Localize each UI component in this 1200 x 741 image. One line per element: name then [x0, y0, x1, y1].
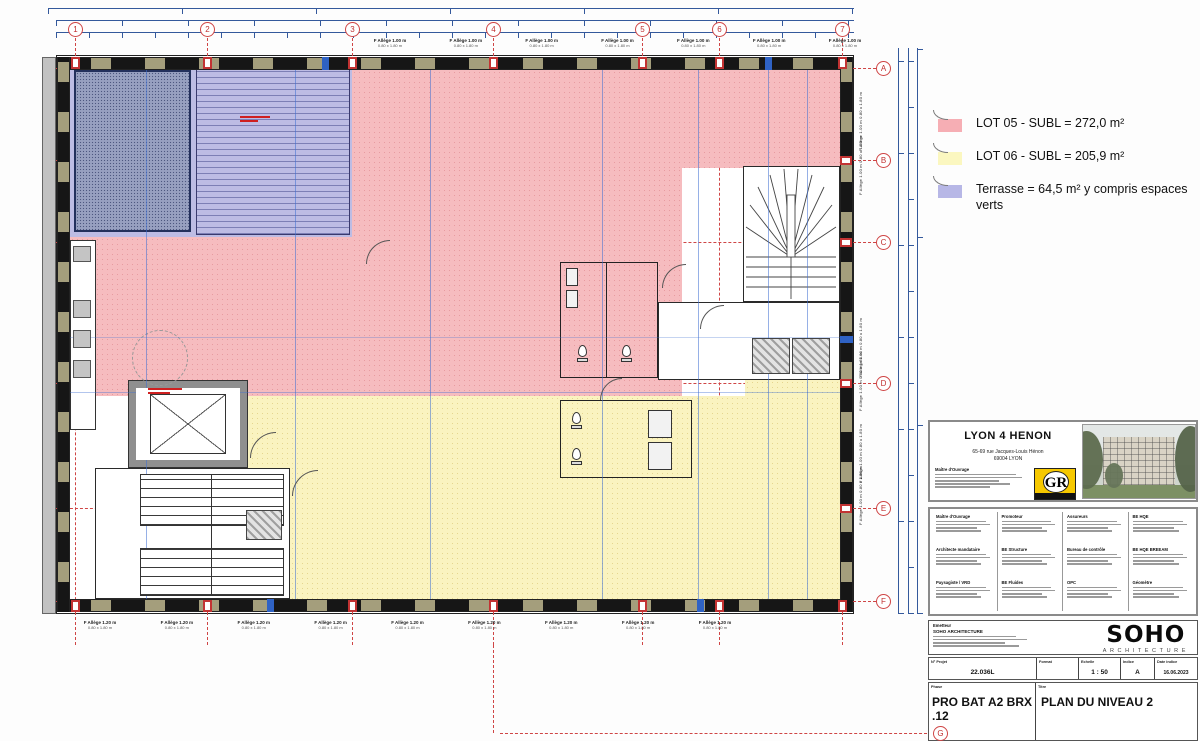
contact-text-line: [1133, 587, 1184, 589]
tree: [1105, 463, 1123, 488]
contact-text-line: [1067, 527, 1108, 529]
tree: [1175, 426, 1196, 492]
contact-text-line: [936, 593, 977, 595]
contact-block: Architecte mandataire: [932, 545, 998, 578]
contact-text-line: [936, 557, 990, 559]
contact-text-line: [1133, 554, 1184, 556]
contact-text-line: [1002, 587, 1052, 589]
contact-text-line: [1133, 530, 1179, 532]
legend-swatch: [938, 119, 962, 132]
contacts-grid: Maître d'OuvragePromoteurAssureursBE HQE…: [928, 507, 1198, 616]
dimension-line: [56, 20, 854, 26]
legend-label: LOT 05 - SUBL = 272,0 m²: [976, 116, 1124, 132]
blue-axis-line: [295, 70, 296, 599]
project-address-2: 69004 LYON: [934, 456, 1082, 462]
grid-bubble-side: A: [876, 61, 891, 76]
field-value: 1 : 50: [1079, 669, 1120, 676]
gr-logo-band: [1035, 493, 1075, 499]
tree: [1082, 431, 1103, 489]
field-label: Echelle: [1081, 660, 1094, 664]
soho-logo: SOHO ARCHITECTURE: [1103, 624, 1189, 654]
blue-axis-line: [768, 70, 769, 599]
contact-text-line: [936, 530, 981, 532]
legend-label: Terrasse = 64,5 m² y compris espaces ver…: [976, 182, 1196, 213]
wall-top: [57, 57, 853, 70]
grid-bubble-bottom: G: [933, 726, 948, 741]
field-value: 16.06.2023: [1155, 670, 1197, 676]
contact-text-line: [936, 596, 981, 598]
field-label: Indice: [1123, 660, 1134, 664]
window-label-top: F Allège 1.00 m0.80 x 1.80 m: [677, 38, 710, 48]
mullion-mark: [765, 57, 772, 70]
contact-text-line: [1133, 560, 1174, 562]
zone-lot05-left: [70, 237, 352, 396]
terrasse-decking: [196, 68, 350, 235]
contact-text-line: [1067, 557, 1121, 559]
window-label-top: F Allège 1.00 m0.80 x 1.80 m: [374, 38, 407, 48]
legend-item: Terrasse = 64,5 m² y compris espaces ver…: [938, 182, 1196, 213]
contact-block-title: BE Fluides: [1002, 580, 1059, 585]
contact-text-line: [1133, 590, 1188, 592]
toilet-tank: [571, 461, 582, 465]
contact-text-line: [936, 563, 981, 565]
elevator-annotation: [148, 388, 182, 390]
contact-block-title: Architecte mandataire: [936, 547, 993, 552]
terrasse-espaces-verts: [74, 70, 191, 232]
field-label: N° Projet: [931, 660, 947, 664]
contact-block-title: Maître d'Ouvrage: [936, 514, 993, 519]
contact-block: Géomètre: [1129, 578, 1195, 611]
cupboard: [792, 338, 830, 374]
contact-text-line: [1002, 521, 1052, 523]
window-frame-mark: [840, 156, 852, 165]
axis-line-G: [500, 733, 932, 734]
grid-bubble-top: 1: [68, 22, 83, 37]
elevator-annotation: [148, 392, 170, 394]
blue-axis-line: [70, 337, 840, 338]
grid-bubble-top: 4: [486, 22, 501, 37]
window-label-top: F Allège 1.00 m0.80 x 1.80 m: [829, 38, 862, 48]
contact-text-line: [1067, 524, 1121, 526]
toilet: [578, 345, 587, 357]
field-value: A: [1121, 669, 1154, 676]
window-frame-mark: [348, 57, 357, 69]
soho-logo-text: SOHO: [1103, 624, 1189, 647]
terrasse-annotation: [240, 120, 258, 122]
contact-text-line: [1002, 563, 1047, 565]
window-frame-mark: [840, 379, 852, 388]
contact-block-title: BE HQE BREEAM: [1133, 547, 1191, 552]
stairwell-room: [743, 166, 840, 302]
contact-text-line: [1067, 560, 1108, 562]
window-frame-mark: [715, 57, 724, 69]
wall-left: [57, 57, 70, 612]
zone-lot05-top: [352, 70, 840, 168]
field-cell-date-indice: Date indice16.06.2023: [1155, 658, 1197, 679]
contact-block-title: BE HQE: [1133, 514, 1191, 519]
contact-text-line: [1067, 590, 1121, 592]
contact-text-line: [1002, 560, 1043, 562]
field-cell-format: Format: [1037, 658, 1079, 679]
legend: LOT 05 - SUBL = 272,0 m²LOT 06 - SUBL = …: [938, 116, 1196, 230]
contact-block-title: Promoteur: [1002, 514, 1059, 519]
contact-text-line: [1067, 593, 1108, 595]
contact-block: Assureurs: [1063, 512, 1129, 545]
window-label-bottom: F Allège 1.20 m0.80 x 1.80 m: [161, 620, 194, 630]
emetteur-block: Emetteur SOHO ARCHITECTURE: [933, 623, 1043, 648]
wall-right: [840, 57, 853, 612]
window-frame-mark: [489, 600, 498, 612]
window-label-bottom: F Allège 1.20 m0.80 x 1.80 m: [699, 620, 732, 630]
blue-axis-line: [602, 70, 603, 599]
field-cell-echelle: Echelle1 : 50: [1079, 658, 1121, 679]
left-ledge: [42, 57, 56, 614]
contact-block-title: Géomètre: [1133, 580, 1191, 585]
emetteur-name: SOHO ARCHITECTURE: [933, 629, 1043, 634]
mullion-mark: [840, 336, 853, 343]
contact-block: BE Fluides: [998, 578, 1064, 611]
duct: [73, 246, 91, 262]
contact-text-line: [1133, 524, 1188, 526]
drawing-sheet: { "sheet": { "type": "architectural floo…: [0, 0, 1200, 741]
fields-row: N° Projet22.036LFormatEchelle1 : 50Indic…: [928, 657, 1198, 680]
contact-text-line: [936, 587, 986, 589]
title-label: Titre: [1038, 685, 1046, 689]
straight-stair: [140, 548, 284, 596]
field-cell-indice: IndiceA: [1121, 658, 1155, 679]
field-value: 22.036L: [929, 669, 1036, 676]
dimension-line: [898, 48, 904, 614]
contact-block: Maître d'Ouvrage: [932, 512, 998, 545]
mullion-mark: [322, 57, 329, 70]
emetteur-box: Emetteur SOHO ARCHITECTURE SOHO ARCHITEC…: [928, 620, 1198, 655]
contact-block: OPC: [1063, 578, 1129, 611]
window-label-bottom: F Allège 1.20 m0.80 x 1.80 m: [237, 620, 270, 630]
gr-logo: GR: [1034, 468, 1076, 500]
contact-text-line: [1067, 563, 1112, 565]
contact-text-line: [1002, 530, 1047, 532]
legend-item: LOT 06 - SUBL = 205,9 m²: [938, 149, 1196, 165]
leader-arc-icon: [933, 143, 948, 153]
dimension-line: [917, 48, 923, 614]
axis-line-G-vert: [493, 645, 494, 733]
duct: [73, 330, 91, 348]
window-frame-mark: [838, 57, 847, 69]
building-render-photo: [1082, 424, 1196, 499]
leader-arc-icon: [933, 176, 948, 186]
wc-partition: [606, 262, 607, 378]
blue-axis-line: [807, 70, 808, 599]
cupboard: [246, 510, 282, 540]
contact-text-line: [1067, 530, 1112, 532]
field-label: Date indice: [1157, 660, 1177, 664]
vanity: [648, 410, 672, 438]
cupboard: [752, 338, 790, 374]
contact-text-line: [1067, 521, 1117, 523]
legend-swatch: [938, 185, 962, 198]
window-label-side: F Allège 1.00 m 0.80 x 1.80 m: [858, 136, 863, 195]
grid-bubble-side: E: [876, 501, 891, 516]
blue-axis-line: [430, 70, 431, 599]
contact-text-line: [936, 524, 990, 526]
elevator-car: [150, 394, 226, 454]
contact-text-line: [1002, 527, 1043, 529]
washbasin: [566, 290, 578, 308]
zone-lot06-upper-right: [745, 380, 840, 396]
window-frame-mark: [638, 600, 647, 612]
grid-bubble-side: C: [876, 235, 891, 250]
contact-block-title: OPC: [1067, 580, 1124, 585]
contact-text-line: [1133, 593, 1174, 595]
window-frame-mark: [489, 57, 498, 69]
contact-text-line: [1002, 596, 1047, 598]
grid-bubble-top: 2: [200, 22, 215, 37]
window-label-bottom: F Allège 1.20 m0.80 x 1.80 m: [391, 620, 424, 630]
window-frame-mark: [71, 57, 80, 69]
window-frame-mark: [840, 504, 852, 513]
window-label-top: F Allège 1.00 m0.80 x 1.80 m: [525, 38, 558, 48]
contact-text-line: [1002, 524, 1056, 526]
mullion-mark: [697, 599, 704, 612]
window-label-side: F Allège 1.00 m 0.80 x 1.80 m: [858, 352, 863, 411]
contact-text-line: [1133, 521, 1184, 523]
window-label-side: F Allège 1.00 m 0.80 x 1.80 m: [858, 466, 863, 525]
grid-bubble-side: B: [876, 153, 891, 168]
contact-block: Bureau de contrôle: [1063, 545, 1129, 578]
grid-bubble-top: 3: [345, 22, 360, 37]
contact-text-line: [936, 590, 990, 592]
field-label: Format: [1039, 660, 1052, 664]
contact-block: BE HQE BREEAM: [1129, 545, 1195, 578]
gr-logo-text: GR: [1043, 471, 1069, 493]
blue-axis-line: [698, 70, 699, 599]
contact-block: Promoteur: [998, 512, 1064, 545]
window-label-bottom: F Allège 1.20 m0.80 x 1.80 m: [468, 620, 501, 630]
toilet-tank: [571, 425, 582, 429]
window-frame-mark: [71, 600, 80, 612]
contact-block-title: Paysagiste / VRD: [936, 580, 993, 585]
zone-lot06-main: [245, 396, 840, 599]
toilet: [622, 345, 631, 357]
contact-block: BE Structure: [998, 545, 1064, 578]
window-label-top: F Allège 1.00 m0.80 x 1.80 m: [450, 38, 483, 48]
emetteur-label: Emetteur: [933, 623, 1043, 628]
toilet: [572, 412, 581, 424]
contact-text-line: [1133, 557, 1188, 559]
toilet-tank: [577, 358, 588, 362]
contact-text-line: [1133, 527, 1174, 529]
contact-text-line: [1002, 590, 1056, 592]
washbasin: [566, 268, 578, 286]
contact-block-title: Bureau de contrôle: [1067, 547, 1124, 552]
door-swing-circle: [132, 330, 188, 386]
contact-text-line: [1067, 596, 1112, 598]
field-cell-n-projet: N° Projet22.036L: [929, 658, 1037, 679]
duct: [73, 300, 91, 318]
window-label-bottom: F Allège 1.20 m0.80 x 1.80 m: [622, 620, 655, 630]
legend-item: LOT 05 - SUBL = 272,0 m²: [938, 116, 1196, 132]
contact-text-line: [1002, 554, 1052, 556]
dimension-line: [48, 8, 854, 14]
contact-block: BE HQE: [1129, 512, 1195, 545]
grid-bubble-side: F: [876, 594, 891, 609]
wc-yellow-walls: [560, 400, 692, 478]
legend-label: LOT 06 - SUBL = 205,9 m²: [976, 149, 1124, 165]
contact-text-line: [1002, 557, 1056, 559]
contact-text-line: [1133, 596, 1179, 598]
phase-label: Phase: [931, 685, 942, 689]
duct: [73, 360, 91, 378]
grid-bubble-side: D: [876, 376, 891, 391]
vanity: [648, 442, 672, 470]
drawing-title: PLAN DU NIVEAU 2: [1041, 695, 1195, 709]
window-label-top: F Allège 1.00 m0.80 x 1.80 m: [601, 38, 634, 48]
toilet: [572, 448, 581, 460]
window-label-top: F Allège 1.00 m0.80 x 1.80 m: [753, 38, 786, 48]
window-label-bottom: F Allège 1.20 m0.80 x 1.80 m: [314, 620, 347, 630]
grid-bubble-top: 5: [635, 22, 650, 37]
client-block: Maître d'Ouvrage: [935, 467, 1027, 490]
phase-title-row: Phase PRO BAT A2 BRX .12 Titre PLAN DU N…: [928, 682, 1198, 741]
mullion-mark: [267, 599, 274, 612]
contact-text-line: [936, 521, 986, 523]
contact-text-line: [936, 554, 986, 556]
contact-text-line: [1067, 587, 1117, 589]
leader-arc-icon: [933, 110, 948, 120]
soho-logo-subtext: ARCHITECTURE: [1103, 648, 1189, 654]
window-label-bottom: F Allège 1.20 m0.80 x 1.80 m: [545, 620, 578, 630]
dimension-line: [908, 48, 914, 614]
window-frame-mark: [203, 57, 212, 69]
window-frame-mark: [348, 600, 357, 612]
stair-rail: [211, 474, 212, 596]
grid-bubble-top: 6: [712, 22, 727, 37]
window-frame-mark: [840, 238, 852, 247]
fan-staircase-icon: [744, 167, 838, 300]
terrasse-annotation: [240, 116, 270, 118]
contact-block: Paysagiste / VRD: [932, 578, 998, 611]
window-label-bottom: F Allège 1.20 m0.80 x 1.80 m: [84, 620, 117, 630]
contact-block-title: Assureurs: [1067, 514, 1124, 519]
contact-text-line: [1002, 593, 1043, 595]
contact-text-line: [936, 527, 977, 529]
contact-text-line: [936, 560, 977, 562]
title-cell: Titre PLAN DU NIVEAU 2: [1036, 683, 1197, 740]
wall-bottom: [57, 599, 853, 612]
window-frame-mark: [838, 600, 847, 612]
window-frame-mark: [203, 600, 212, 612]
contact-text-line: [1133, 563, 1179, 565]
window-frame-mark: [715, 600, 724, 612]
toilet-tank: [621, 358, 632, 362]
project-title: LYON 4 HENON: [934, 430, 1082, 442]
legend-swatch: [938, 152, 962, 165]
project-address-1: 65-69 rue Jacques-Louis Hénon: [934, 449, 1082, 455]
contact-text-line: [1067, 554, 1117, 556]
window-frame-mark: [638, 57, 647, 69]
contact-block-title: BE Structure: [1002, 547, 1059, 552]
grid-bubble-top: 7: [835, 22, 850, 37]
phase-value: PRO BAT A2 BRX .12: [932, 695, 1033, 723]
client-label: Maître d'Ouvrage: [935, 467, 1027, 472]
